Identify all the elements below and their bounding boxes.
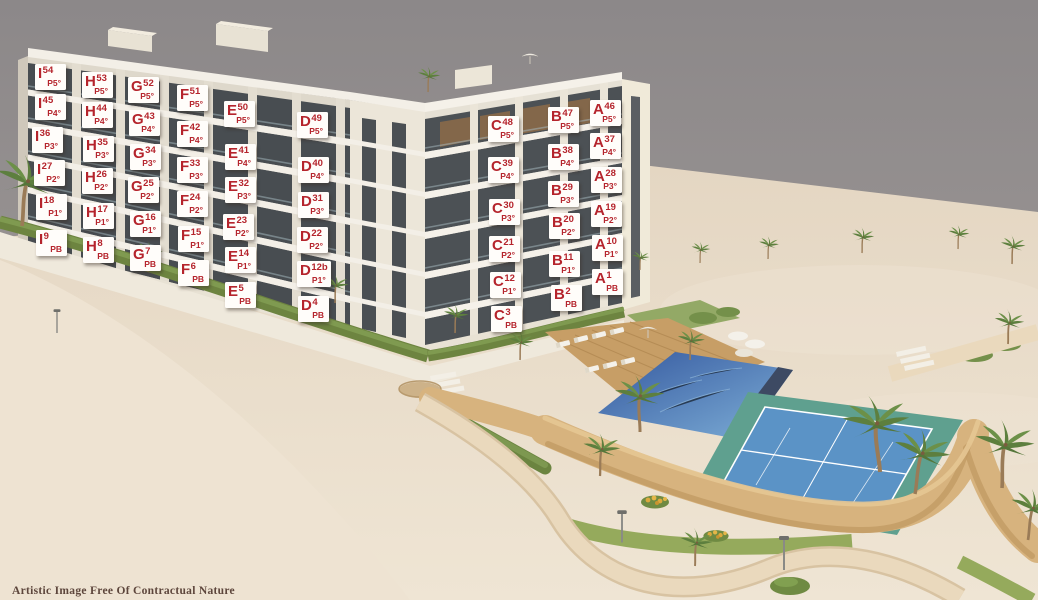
- unit-number: 16: [145, 212, 156, 223]
- unit-label-C30[interactable]: C30 P3°: [489, 199, 520, 225]
- unit-number: 40: [312, 158, 323, 169]
- unit-number: 47: [562, 108, 573, 119]
- unit-label-D4[interactable]: D4 PB: [298, 296, 329, 322]
- unit-label-C39[interactable]: C39 P4°: [488, 157, 519, 183]
- unit-label-D31[interactable]: D31 P3°: [298, 192, 329, 218]
- unit-label-G7[interactable]: G7 PB: [130, 245, 161, 271]
- unit-label-I54[interactable]: I54 P5°: [35, 64, 66, 90]
- unit-label-H44[interactable]: H44 P4°: [82, 102, 113, 128]
- unit-number: 41: [239, 145, 250, 156]
- unit-block-letter: I: [35, 128, 39, 145]
- unit-label-H8[interactable]: H8 PB: [83, 237, 114, 263]
- unit-label-A10[interactable]: A10 P1°: [592, 235, 623, 261]
- unit-block-letter: G: [133, 246, 144, 263]
- unit-number: 32: [239, 178, 250, 189]
- unit-number: 51: [190, 86, 201, 97]
- unit-label-E50[interactable]: E50 P5°: [224, 101, 255, 127]
- unit-number: 46: [604, 101, 615, 112]
- render-scene: I54 P5° I45 P4° I36 P3° I27 P2° I18 P1° …: [0, 0, 1038, 600]
- unit-label-G25[interactable]: G25 P2°: [128, 177, 159, 203]
- unit-label-G52[interactable]: G52 P5°: [128, 77, 159, 103]
- unit-block-letter: A: [595, 270, 605, 287]
- unit-labels-layer: I54 P5° I45 P4° I36 P3° I27 P2° I18 P1° …: [0, 0, 1038, 600]
- unit-label-D49[interactable]: D49 P5°: [297, 112, 328, 138]
- unit-number: 43: [144, 111, 155, 122]
- unit-number: 11: [563, 252, 573, 263]
- unit-block-letter: H: [86, 238, 96, 255]
- unit-label-D12b[interactable]: D12b P1°: [297, 261, 331, 287]
- unit-number: 20: [563, 214, 574, 225]
- unit-label-E41[interactable]: E41 P4°: [225, 144, 256, 170]
- unit-label-I45[interactable]: I45 P4°: [35, 94, 66, 120]
- unit-number: 42: [190, 122, 201, 133]
- unit-number: 19: [605, 202, 616, 213]
- unit-number: 37: [604, 134, 615, 145]
- unit-label-H17[interactable]: H17 P1°: [83, 203, 114, 229]
- unit-number: 33: [190, 158, 201, 169]
- unit-label-G43[interactable]: G43 P4°: [129, 110, 160, 136]
- unit-label-A28[interactable]: A28 P3°: [591, 167, 622, 193]
- unit-label-I9[interactable]: I9 PB: [36, 230, 67, 256]
- unit-number: 10: [606, 236, 617, 247]
- unit-number: 4: [312, 297, 317, 308]
- unit-label-E32[interactable]: E32 P3°: [225, 177, 256, 203]
- unit-label-E5[interactable]: E5 PB: [225, 282, 256, 308]
- unit-number: 39: [502, 158, 513, 169]
- unit-number: 7: [145, 246, 150, 257]
- unit-block-letter: F: [181, 261, 190, 278]
- unit-number: 14: [239, 248, 250, 259]
- unit-block-letter: B: [554, 286, 564, 303]
- unit-label-F33[interactable]: F33 P3°: [177, 157, 208, 183]
- unit-label-C3[interactable]: C3 PB: [491, 306, 522, 332]
- unit-label-A19[interactable]: A19 P2°: [591, 201, 622, 227]
- unit-block-letter: F: [180, 158, 189, 175]
- unit-label-B20[interactable]: B20 P2°: [549, 213, 580, 239]
- unit-label-H35[interactable]: H35 P3°: [83, 136, 114, 162]
- unit-label-B11[interactable]: B11 P1°: [549, 251, 580, 277]
- unit-label-B2[interactable]: B2 PB: [551, 285, 582, 311]
- unit-label-I18[interactable]: I18 P1°: [36, 194, 67, 220]
- unit-label-B29[interactable]: B29 P3°: [548, 181, 579, 207]
- unit-label-F15[interactable]: F15 P1°: [178, 226, 209, 252]
- unit-label-B38[interactable]: B38 P4°: [548, 144, 579, 170]
- unit-block-letter: F: [181, 227, 190, 244]
- unit-label-A1[interactable]: A1 PB: [592, 269, 623, 295]
- unit-number: 44: [96, 103, 107, 114]
- unit-label-C48[interactable]: C48 P5°: [488, 116, 519, 142]
- unit-number: 36: [40, 128, 51, 139]
- unit-number: 1: [606, 270, 611, 281]
- unit-label-I36[interactable]: I36 P3°: [32, 127, 63, 153]
- unit-number: 15: [191, 227, 202, 238]
- unit-label-F24[interactable]: F24 P2°: [177, 191, 208, 217]
- unit-number: 25: [143, 178, 154, 189]
- unit-label-E23[interactable]: E23 P2°: [223, 214, 254, 240]
- unit-number: 17: [97, 204, 108, 215]
- unit-number: 48: [502, 117, 513, 128]
- unit-number: 5: [239, 283, 244, 294]
- unit-number: 3: [505, 307, 510, 318]
- unit-label-H53[interactable]: H53 P5°: [82, 72, 113, 98]
- unit-block-letter: C: [494, 307, 504, 324]
- unit-label-I27[interactable]: I27 P2°: [34, 160, 65, 186]
- unit-block-letter: I: [39, 231, 43, 248]
- unit-label-C12[interactable]: C12 P1°: [490, 272, 521, 298]
- unit-block-letter: D: [300, 262, 310, 279]
- unit-label-D22[interactable]: D22 P2°: [297, 227, 328, 253]
- unit-number: 21: [503, 237, 514, 248]
- unit-block-letter: I: [39, 195, 43, 212]
- unit-number: 2: [565, 286, 570, 297]
- disclaimer-text: Artistic Image Free Of Contractual Natur…: [12, 585, 235, 597]
- unit-label-H26[interactable]: H26 P2°: [82, 168, 113, 194]
- unit-block-letter: I: [38, 65, 42, 82]
- unit-number: 6: [191, 261, 196, 272]
- unit-number: 28: [605, 168, 616, 179]
- unit-block-letter: E: [228, 248, 238, 265]
- unit-number: 34: [145, 145, 156, 156]
- unit-label-F51[interactable]: F51 P5°: [177, 85, 208, 111]
- unit-block-letter: E: [226, 215, 236, 232]
- unit-number: 12: [504, 273, 515, 284]
- unit-number: 8: [97, 238, 102, 249]
- unit-number: 53: [96, 73, 107, 84]
- unit-number: 26: [96, 169, 107, 180]
- unit-block-letter: D: [301, 297, 311, 314]
- unit-number: 24: [190, 192, 201, 203]
- unit-label-B47[interactable]: B47 P5°: [548, 107, 579, 133]
- unit-number: 49: [311, 113, 322, 124]
- unit-number: 12b: [311, 262, 327, 273]
- unit-number: 9: [44, 231, 49, 242]
- unit-number: 52: [143, 78, 154, 89]
- unit-number: 30: [503, 200, 514, 211]
- unit-number: 31: [312, 193, 323, 204]
- unit-number: 45: [43, 95, 54, 106]
- unit-label-F42[interactable]: F42 P4°: [177, 121, 208, 147]
- unit-block-letter: E: [228, 283, 238, 300]
- unit-number: 54: [43, 65, 54, 76]
- unit-number: 29: [562, 182, 573, 193]
- unit-number: 38: [562, 145, 573, 156]
- unit-block-letter: I: [37, 161, 41, 178]
- unit-label-F6[interactable]: F6 PB: [178, 260, 209, 286]
- unit-label-E14[interactable]: E14 P1°: [225, 247, 256, 273]
- unit-number: 27: [42, 161, 53, 172]
- unit-label-A46[interactable]: A46 P5°: [590, 100, 621, 126]
- unit-block-letter: F: [180, 122, 189, 139]
- unit-label-G34[interactable]: G34 P3°: [130, 144, 161, 170]
- unit-number: 35: [97, 137, 108, 148]
- unit-number: 23: [237, 215, 248, 226]
- unit-block-letter: E: [228, 178, 238, 195]
- unit-block-letter: F: [180, 86, 189, 103]
- unit-label-A37[interactable]: A37 P4°: [590, 133, 621, 159]
- unit-number: 22: [311, 228, 322, 239]
- unit-label-D40[interactable]: D40 P4°: [298, 157, 329, 183]
- unit-block-letter: I: [38, 95, 42, 112]
- unit-block-letter: F: [180, 192, 189, 209]
- unit-number: 50: [238, 102, 249, 113]
- unit-label-C21[interactable]: C21 P2°: [489, 236, 520, 262]
- unit-block-letter: E: [227, 102, 237, 119]
- unit-number: 18: [44, 195, 55, 206]
- unit-block-letter: E: [228, 145, 238, 162]
- unit-label-G16[interactable]: G16 P1°: [130, 211, 161, 237]
